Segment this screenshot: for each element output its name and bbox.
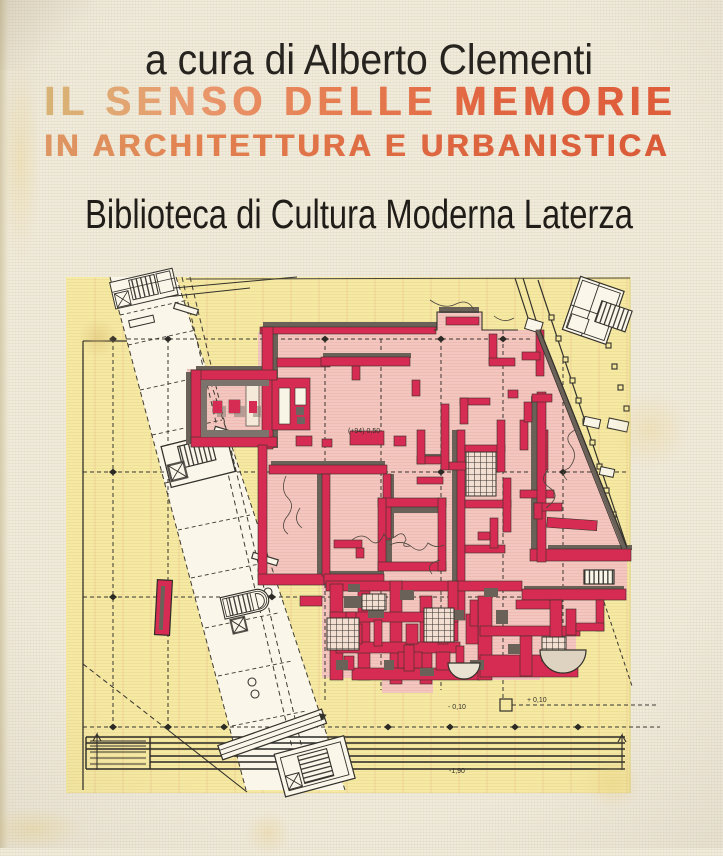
svg-text:-1,90: -1,90 (449, 768, 465, 775)
svg-text:+ 0,10: + 0,10 (527, 697, 547, 704)
svg-text:(+94) 0,50: (+94) 0,50 (348, 428, 380, 435)
svg-text:- 0,10: - 0,10 (448, 704, 466, 711)
